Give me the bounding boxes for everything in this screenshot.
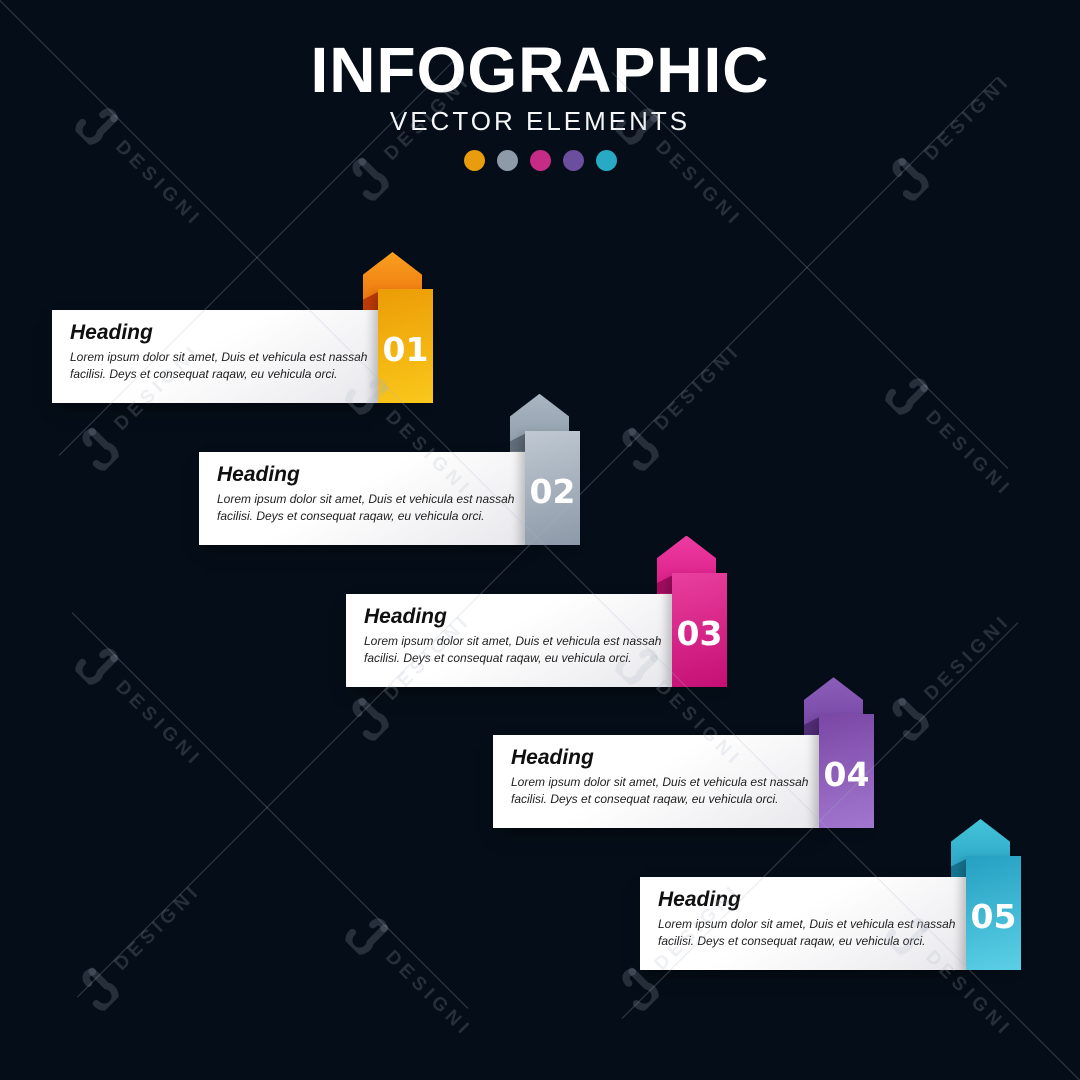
legend-dots [0, 150, 1080, 171]
step-heading: Heading [658, 888, 950, 911]
step-number: 03 [677, 617, 723, 650]
designi-watermark: DESIGNI [70, 636, 213, 779]
step-card: Heading Lorem ipsum dolor sit amet, Duis… [493, 735, 819, 828]
watermark-label: DESIGNI [920, 610, 1016, 706]
designi-logo-icon [70, 636, 124, 690]
page-subtitle: VECTOR ELEMENTS [0, 106, 1080, 137]
infographic-canvas: INFOGRAPHIC VECTOR ELEMENTS Heading Lore… [0, 0, 1080, 1080]
legend-dot [464, 150, 485, 171]
step-body-text: Lorem ipsum dolor sit amet, Duis et vehi… [658, 916, 960, 950]
step-card: Heading Lorem ipsum dolor sit amet, Duis… [346, 594, 672, 687]
step-number-badge: 04 [819, 714, 874, 828]
step-number-badge: 05 [966, 856, 1021, 970]
step-heading: Heading [364, 605, 656, 628]
page-title: INFOGRAPHIC [0, 38, 1080, 102]
step-number: 04 [824, 758, 870, 791]
designi-watermark: DESIGNI [880, 603, 1023, 746]
step-number-badge: 02 [525, 431, 580, 545]
step-number-badge: 03 [672, 573, 727, 687]
step-heading: Heading [217, 463, 509, 486]
header: INFOGRAPHIC VECTOR ELEMENTS [0, 0, 1080, 171]
step-heading: Heading [70, 321, 362, 344]
designi-watermark: DESIGNI [340, 906, 483, 1049]
watermark-label: DESIGNI [110, 880, 206, 976]
step-number: 05 [971, 900, 1017, 933]
step-body-text: Lorem ipsum dolor sit amet, Duis et vehi… [511, 774, 813, 808]
step-body-text: Lorem ipsum dolor sit amet, Duis et vehi… [217, 491, 519, 525]
step-number: 02 [530, 475, 576, 508]
legend-dot [497, 150, 518, 171]
designi-watermark: DESIGNI [880, 366, 1023, 509]
step-number: 01 [383, 333, 429, 366]
step-body-text: Lorem ipsum dolor sit amet, Duis et vehi… [364, 633, 666, 667]
designi-logo-icon [880, 366, 934, 420]
step-card: Heading Lorem ipsum dolor sit amet, Duis… [52, 310, 378, 403]
legend-dot [530, 150, 551, 171]
designi-logo-icon [340, 906, 394, 960]
legend-dot [563, 150, 584, 171]
step-heading: Heading [511, 746, 803, 769]
step: Heading Lorem ipsum dolor sit amet, Duis… [640, 877, 1080, 1057]
legend-dot [596, 150, 617, 171]
watermark-label: DESIGNI [920, 406, 1016, 502]
designi-watermark: DESIGNI [70, 873, 213, 1016]
watermark-label: DESIGNI [380, 946, 476, 1042]
designi-logo-icon [70, 962, 124, 1016]
step-card: Heading Lorem ipsum dolor sit amet, Duis… [199, 452, 525, 545]
step-card: Heading Lorem ipsum dolor sit amet, Duis… [640, 877, 966, 970]
step-body-text: Lorem ipsum dolor sit amet, Duis et vehi… [70, 349, 372, 383]
watermark-label: DESIGNI [650, 340, 746, 436]
step-number-badge: 01 [378, 289, 433, 403]
watermark-label: DESIGNI [110, 676, 206, 772]
